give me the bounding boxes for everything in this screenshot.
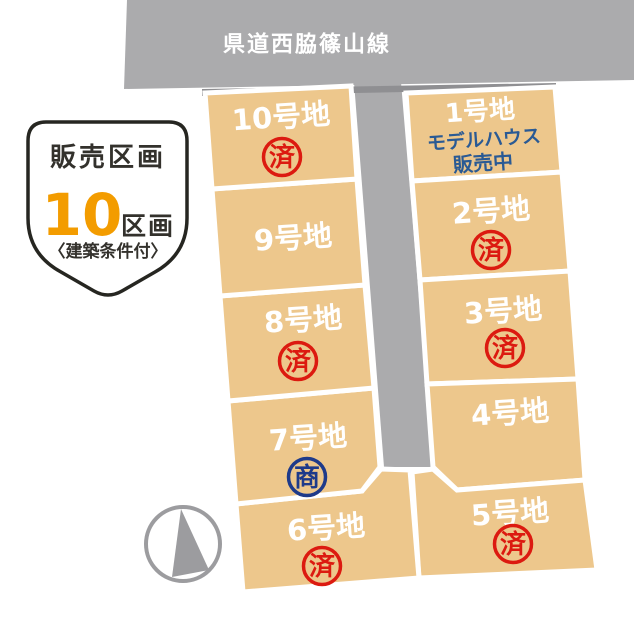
road-top: 県道西脇篠山線: [124, 0, 634, 89]
lot-8-status-stamp: 済: [280, 343, 317, 380]
lot-8: 8号地 済: [220, 285, 374, 401]
lot-9-label: 9号地: [253, 218, 333, 257]
lot-2: 2号地 済: [412, 172, 570, 280]
lot-1: 1号地 モデルハウス 販売中: [406, 87, 562, 181]
lot-8-label: 8号地: [263, 300, 343, 339]
stamp-text: 済: [269, 142, 296, 173]
lot-7: 7号地 商: [228, 388, 380, 504]
lot-4-label: 4号地: [470, 393, 550, 432]
lot-3-status-stamp: 済: [487, 330, 524, 367]
lot-2-status-stamp: 済: [473, 232, 510, 269]
lot-1-label: 1号地: [444, 95, 516, 130]
stamp-text: 商: [294, 462, 320, 493]
north-compass: [146, 507, 220, 581]
stamp-text: 済: [500, 529, 527, 560]
stamp-text: 済: [309, 551, 336, 582]
stamp-text: 済: [478, 235, 505, 266]
sales-badge-title: 販売区画: [50, 143, 166, 173]
lot-10-status-stamp: 済: [264, 139, 301, 176]
lot-7-label: 7号地: [268, 418, 348, 457]
lot-9: 9号地: [212, 179, 365, 296]
road-top-label: 県道西脇篠山線: [223, 32, 391, 58]
lot-2-label: 2号地: [451, 191, 531, 230]
sales-badge-count-unit: 区画: [121, 212, 175, 241]
sales-badge: 販売区画 10 区画 〈建築条件付〉: [28, 122, 187, 295]
lot-7-status-stamp: 商: [289, 459, 326, 496]
lot-10: 10号地 済: [205, 86, 357, 189]
stamp-text: 済: [492, 333, 519, 364]
lot-5-status-stamp: 済: [495, 526, 532, 563]
lot-5: 5号地 済: [412, 469, 597, 578]
sales-badge-count: 10: [42, 181, 123, 249]
lot-6-status-stamp: 済: [304, 548, 341, 585]
lot-map-canvas: 県道西脇篠山線 1号地 モデルハウス 販売中 2号地 済 3号地 済 4号地 5…: [0, 0, 634, 643]
lot-4: 4号地: [427, 379, 585, 490]
lot-10-label: 10号地: [231, 97, 331, 138]
sales-badge-note: 〈建築条件付〉: [49, 241, 168, 262]
lot-1-model-house-line2: 販売中: [452, 149, 514, 177]
stamp-text: 済: [285, 346, 312, 377]
lot-3: 3号地 済: [420, 271, 578, 384]
lot-6-label: 6号地: [286, 508, 366, 547]
lot-3-label: 3号地: [463, 291, 543, 330]
